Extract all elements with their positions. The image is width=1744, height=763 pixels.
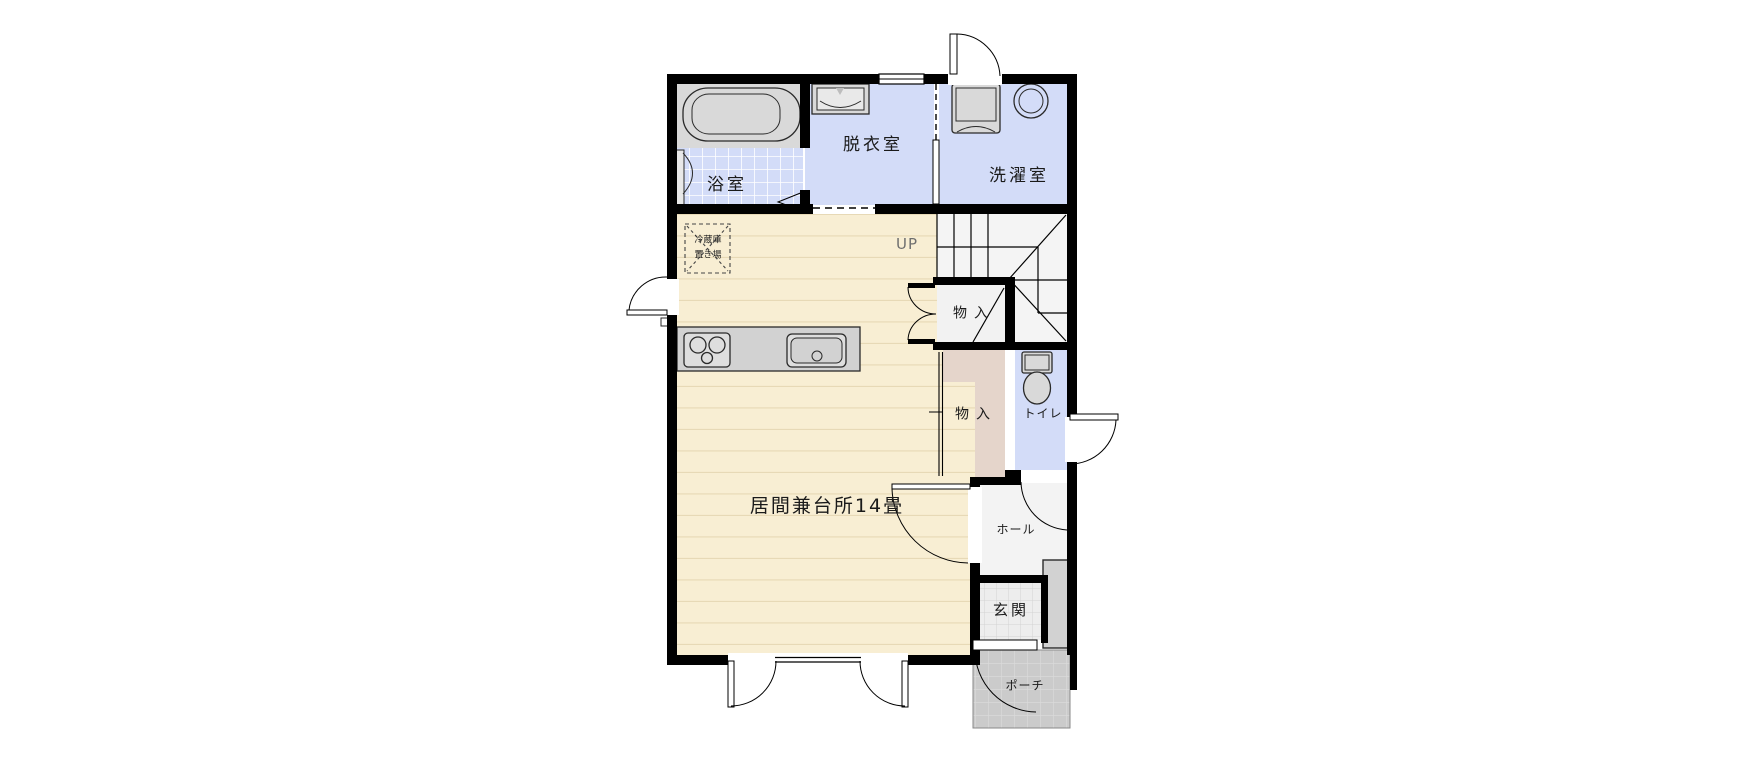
room-label-hall: ホール <box>996 524 1035 537</box>
door-laundry-arc <box>957 34 1000 76</box>
floorplan-drawing <box>0 0 1744 763</box>
toilet-window-leaf <box>1070 414 1118 420</box>
door-terrace-arc <box>731 661 776 706</box>
door-laundry-leaf <box>950 34 957 74</box>
door-terrace-leaf <box>902 661 908 707</box>
room-label-entrance: 玄関 <box>993 603 1029 619</box>
room-label-closet-lower: 物入 <box>955 408 997 423</box>
fridge-space-label-line1: 冷蔵庫 <box>694 236 721 245</box>
room-label-dressing: 脱衣室 <box>843 137 903 155</box>
door-kitchen-arc <box>629 277 667 310</box>
room-label-laundry: 洗濯室 <box>989 168 1049 186</box>
stairs-up-label: UP <box>896 237 918 253</box>
room-label-closet-upper: 物入 <box>953 307 995 322</box>
room-label-living-kitchen: 居間兼台所14畳 <box>750 497 904 517</box>
room-label-bath: 浴室 <box>707 177 747 195</box>
floorplan-page: 浴室 脱衣室 洗濯室 UP 物入 物入 トイレ 居間兼台所14畳 ホール 玄関 … <box>0 0 1744 763</box>
entrance-door-leaf <box>973 640 1037 650</box>
door-terrace-arc <box>860 661 905 706</box>
room-label-porch: ポーチ <box>1005 680 1044 693</box>
door-hall-leaf <box>892 484 970 489</box>
toilet-bowl <box>1024 372 1051 404</box>
door-terrace-leaf <box>728 661 734 707</box>
closet-lower-notch <box>943 382 975 477</box>
washing-machine <box>952 84 1000 133</box>
room-label-toilet: トイレ <box>1023 408 1062 421</box>
fridge-space-label-line2: 置き場 <box>694 251 721 260</box>
living-room-floor <box>677 214 970 655</box>
door-kitchen-leaf <box>627 310 667 315</box>
